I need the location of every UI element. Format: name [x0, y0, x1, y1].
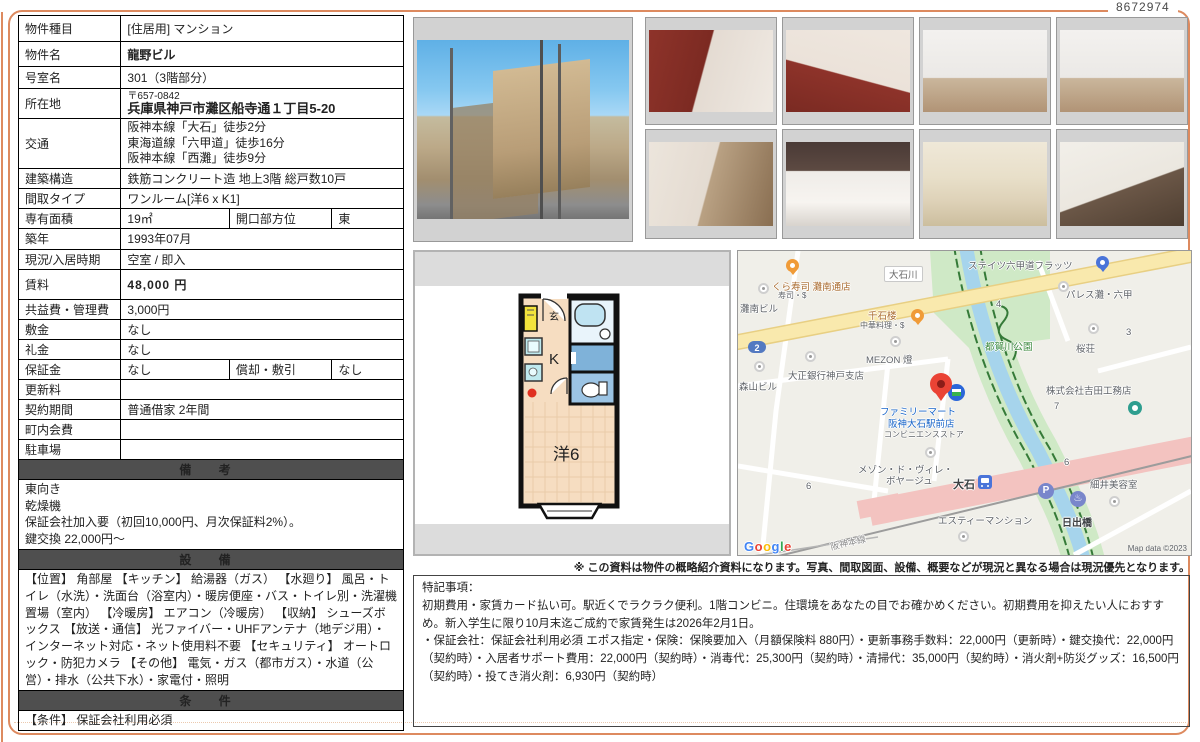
special-notes-line2: ・保証会社：保証会社利用必須 エポス指定・保険：保険要加入（月額保険料 880円… — [422, 633, 1181, 686]
poi-pin — [1109, 496, 1120, 507]
amortization-label: 償却・敷引 — [229, 359, 331, 379]
property-name: 龍野ビル — [121, 42, 404, 67]
table-row: 【条件】 保証会社利用必須 — [19, 710, 404, 730]
row-label: 敷金 — [19, 319, 121, 339]
floorplan-room-label: 洋6 — [553, 445, 579, 464]
map-label-hinode: 日出橋 — [1062, 514, 1092, 529]
special-notes-title: 特記事項： — [422, 580, 1181, 598]
rent-amount: 48,000 円 — [121, 269, 404, 299]
restaurant-pin-kurazushi — [786, 259, 799, 272]
map-label-station: 大石 — [953, 476, 975, 492]
deposit: なし — [121, 319, 404, 339]
row-label: 物件種目 — [19, 16, 121, 42]
remarks-header: 備 考 — [19, 459, 404, 479]
table-row: 更新料 — [19, 379, 404, 399]
property-type: [住居用] マンション — [121, 16, 404, 42]
remarks-line: 乾燥機 — [25, 498, 397, 515]
access-line: 東海道線「六甲道」徒歩16分 — [127, 136, 397, 152]
remarks-body: 東向き 乾燥機 保証会社加入要（初回10,000円、月次保証料2%）。 鍵交換 … — [19, 479, 404, 549]
row-label: 築年 — [19, 228, 121, 249]
table-row: 町内会費 — [19, 419, 404, 439]
table-row: 間取タイプ ワンルーム[洋6 x K1] — [19, 188, 404, 208]
poi-pin — [925, 447, 936, 458]
train-station-icon — [978, 475, 992, 489]
table-row: 共益費・管理費 3,000円 — [19, 299, 404, 319]
photo-kitchen — [645, 129, 777, 239]
map-label-kurazushi-sub: 寿司・$ — [778, 290, 806, 301]
renewal-fee — [121, 379, 404, 399]
table-row: 専有面積 19㎡ 開口部方位 東 — [19, 208, 404, 228]
table-row: 【位置】 角部屋 【キッチン】 給湯器（ガス） 【水廻り】 風呂・トイレ（水洗）… — [19, 569, 404, 690]
poi-pin — [1088, 323, 1099, 334]
table-row: 条 件 — [19, 690, 404, 710]
mailboxes-image — [649, 30, 774, 113]
map-label-taisho-bank: 大正銀行神戸支店 — [788, 368, 864, 382]
poi-pin — [805, 351, 816, 362]
photo-building-exterior — [413, 17, 633, 242]
map-label-maison-2: ボヤージュ — [886, 473, 933, 487]
property-flyer-page: 8672974 物件種目 [住居用] マンション 物件名 龍野ビル 号室名 30… — [0, 0, 1200, 742]
access-line: 阪神本線「西灘」徒歩9分 — [127, 151, 397, 167]
access-cell: 阪神本線「大石」徒歩2分 東海道線「六甲道」徒歩16分 阪神本線「西灘」徒歩9分 — [121, 119, 404, 169]
floorplan-kitchen-label: K — [549, 351, 559, 368]
row-label: 号室名 — [19, 67, 121, 89]
row-label: 交通 — [19, 119, 121, 169]
table-row: 敷金 なし — [19, 319, 404, 339]
onsen-pin: ♨ — [1070, 491, 1086, 507]
toilet-image — [786, 142, 911, 226]
table-row: 交通 阪神本線「大石」徒歩2分 東海道線「六甲道」徒歩16分 阪神本線「西灘」徒… — [19, 119, 404, 169]
access-line: 阪神本線「大石」徒歩2分 — [127, 120, 397, 136]
table-row: 物件名 龍野ビル — [19, 42, 404, 67]
map-label-nadaminami: 灘南ビル — [740, 301, 778, 315]
table-row: 物件種目 [住居用] マンション — [19, 16, 404, 42]
poi-pin — [754, 361, 765, 372]
remarks-line: 東向き — [25, 481, 397, 498]
parking-pin: P — [1038, 483, 1054, 499]
map-label-esty: エスティーマンション — [938, 513, 1032, 527]
table-row: 東向き 乾燥機 保証会社加入要（初回10,000円、月次保証料2%）。 鍵交換 … — [19, 479, 404, 549]
map-label-yoshida: 株式会社吉田工務店 — [1046, 383, 1132, 397]
table-row: 築年 1993年07月 — [19, 228, 404, 249]
photo-room-2 — [1056, 17, 1188, 125]
table-row: 備 考 — [19, 459, 404, 479]
table-row: 礼金 なし — [19, 339, 404, 359]
amortization-value: なし — [332, 359, 404, 379]
floor-plan: 玄 K 洋6 — [413, 250, 731, 556]
conditions-body: 【条件】 保証会社利用必須 — [19, 710, 404, 730]
map-label-oishigawa: 大石川 — [884, 266, 923, 282]
conditions-header: 条 件 — [19, 690, 404, 710]
disclaimer-note: ※ この資料は物件の概略紹介資料になります。写真、間取図面、設備、概要などが現況… — [420, 559, 1190, 575]
photo-toilet — [782, 129, 914, 239]
map-label-familymart-3: コンビニエンスストア — [884, 429, 964, 440]
business-pin-yoshida — [1128, 401, 1142, 415]
table-row: 現況/入居時期 空室 / 即入 — [19, 249, 404, 269]
map-label-num6b: 6 — [1064, 457, 1069, 468]
facing-label: 開口部方位 — [229, 208, 331, 228]
floor-plan-drawing: 玄 K 洋6 — [415, 252, 729, 554]
google-logo: Google — [744, 539, 792, 554]
contract-period: 普通借家 2年間 — [121, 399, 404, 419]
poi-pin — [890, 336, 901, 347]
poi-pin — [958, 531, 969, 542]
photo-mailboxes — [645, 17, 777, 125]
table-row: 保証金 なし 償却・敷引 なし — [19, 359, 404, 379]
table-row: 賃料 48,000 円 — [19, 269, 404, 299]
building-exterior-image — [417, 40, 628, 218]
row-label: 物件名 — [19, 42, 121, 67]
row-label: 駐車場 — [19, 439, 121, 459]
photo-entrance-hall — [782, 17, 914, 125]
postal-code: 〒657-0842 — [127, 91, 397, 102]
restaurant-pin-sengokuro — [911, 309, 924, 322]
floor-area: 19㎡ — [121, 208, 230, 228]
row-label: 共益費・管理費 — [19, 299, 121, 319]
map-label-palace: パレス灘・六甲 — [1066, 287, 1133, 301]
association-fee — [121, 419, 404, 439]
key-money: なし — [121, 339, 404, 359]
special-notes-box: 特記事項： 初期費用・家賃カード払い可。駅近くでラクラク便利。1階コンビニ。住環… — [413, 575, 1190, 727]
location-map: 2 P ♨ くら寿司 灘南通店 寿司・$ 灘南ビル 大石川 ステイツ六甲道フラッ… — [737, 250, 1192, 556]
lodging-pin-states — [1096, 256, 1109, 269]
map-attribution: Map data ©2023 — [1128, 544, 1187, 553]
equipment-header: 設 備 — [19, 549, 404, 569]
map-label-mezon: MEZON 燈 — [866, 352, 912, 366]
remarks-line: 保証会社加入要（初回10,000円、月次保証料2%）。 — [25, 514, 397, 531]
floorplan-entrance-label: 玄 — [549, 310, 559, 323]
address-cell: 〒657-0842 兵庫県神戸市灘区船寺通１丁目5-20 — [121, 89, 404, 119]
map-label-num7: 7 — [1054, 401, 1059, 412]
equipment-body: 【位置】 角部屋 【キッチン】 給湯器（ガス） 【水廻り】 風呂・トイレ（水洗）… — [19, 569, 404, 690]
room-image-2 — [1060, 30, 1185, 113]
room-number: 301（3階部分） — [121, 67, 404, 89]
row-label: 契約期間 — [19, 399, 121, 419]
table-row: 号室名 301（3階部分） — [19, 67, 404, 89]
structure: 鉄筋コンクリート造 地上3階 総戸数10戸 — [121, 168, 404, 188]
kitchen-image — [649, 142, 774, 226]
room-image-1 — [923, 30, 1048, 113]
map-label-sengokuro-sub: 中華料理・$ — [860, 320, 904, 331]
document-number: 8672974 — [1108, 0, 1178, 14]
map-label-park: 都賀川公園 — [985, 339, 1033, 353]
svg-text:2: 2 — [754, 343, 759, 353]
photo-bathroom — [919, 129, 1051, 239]
layout-type: ワンルーム[洋6 x K1] — [121, 188, 404, 208]
row-label: 町内会費 — [19, 419, 121, 439]
table-row: 契約期間 普通借家 2年間 — [19, 399, 404, 419]
map-label-familymart-2: 阪神大石駅前店 — [888, 416, 955, 430]
entrance-hall-image — [786, 30, 911, 113]
map-label-sakuraso: 桜荘 — [1076, 341, 1095, 355]
photo-room-1 — [919, 17, 1051, 125]
built-year: 1993年07月 — [121, 228, 404, 249]
map-label-hosoi: 細井美容室 — [1090, 477, 1138, 491]
management-fee: 3,000円 — [121, 299, 404, 319]
occupancy-status: 空室 / 即入 — [121, 249, 404, 269]
row-label: 建築構造 — [19, 168, 121, 188]
row-label: 所在地 — [19, 89, 121, 119]
bathroom-image — [923, 142, 1048, 226]
row-label: 更新料 — [19, 379, 121, 399]
guarantee-deposit: なし — [121, 359, 230, 379]
address: 兵庫県神戸市灘区船寺通１丁目5-20 — [127, 102, 397, 117]
table-row: 駐車場 — [19, 439, 404, 459]
special-notes-line1: 初期費用・家賃カード払い可。駅近くでラクラク便利。1階コンビニ。住環境をあなたの… — [422, 598, 1181, 634]
table-row: 設 備 — [19, 549, 404, 569]
map-label-num6a: 6 — [806, 481, 811, 492]
poi-pin — [758, 283, 769, 294]
row-label: 保証金 — [19, 359, 121, 379]
map-label-num4: 4 — [996, 299, 1001, 310]
photo-hallway — [1056, 129, 1188, 239]
row-label: 専有面積 — [19, 208, 121, 228]
destination-pin — [930, 373, 952, 395]
table-row: 建築構造 鉄筋コンクリート造 地上3階 総戸数10戸 — [19, 168, 404, 188]
row-label: 現況/入居時期 — [19, 249, 121, 269]
row-label: 礼金 — [19, 339, 121, 359]
hallway-image — [1060, 142, 1185, 226]
parking — [121, 439, 404, 459]
map-label-num3: 3 — [1126, 327, 1131, 338]
remarks-line: 鍵交換 22,000円〜 — [25, 531, 397, 548]
property-table: 物件種目 [住居用] マンション 物件名 龍野ビル 号室名 301（3階部分） … — [18, 15, 404, 731]
row-label: 賃料 — [19, 269, 121, 299]
map-label-moriyama: 森山ビル — [739, 379, 777, 393]
facing-value: 東 — [332, 208, 404, 228]
row-label: 間取タイプ — [19, 188, 121, 208]
page-edge-line — [1, 12, 3, 742]
table-row: 所在地 〒657-0842 兵庫県神戸市灘区船寺通１丁目5-20 — [19, 89, 404, 119]
map-label-states: ステイツ六甲道フラッツ — [968, 258, 1073, 272]
